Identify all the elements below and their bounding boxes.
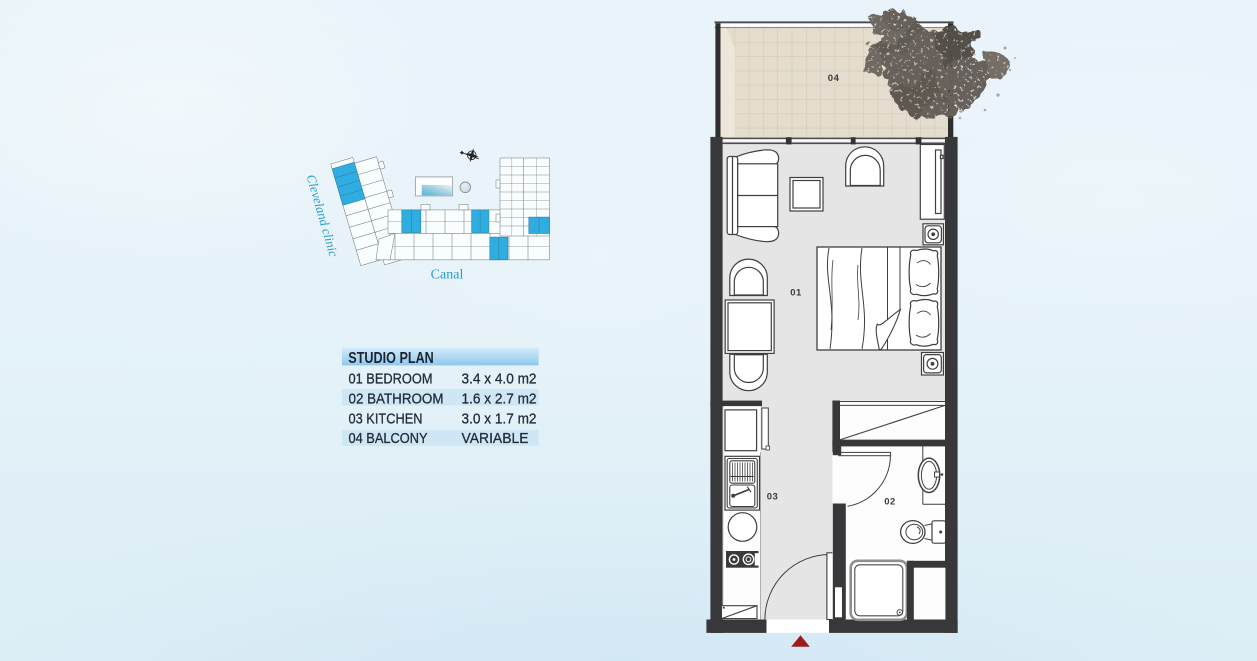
svg-text:04: 04 [828, 73, 840, 84]
svg-text:3.4 x 4.0 m2: 3.4 x 4.0 m2 [462, 371, 537, 388]
svg-text:01: 01 [790, 288, 802, 299]
svg-text:Canal: Canal [431, 268, 464, 283]
svg-text:02 BATHROOM: 02 BATHROOM [349, 390, 444, 407]
svg-text:02: 02 [884, 497, 896, 508]
svg-text:03 KITCHEN: 03 KITCHEN [349, 410, 423, 427]
svg-text:Cleveland clinic: Cleveland clinic [304, 173, 342, 259]
svg-text:VARIABLE: VARIABLE [462, 430, 529, 447]
svg-text:STUDIO PLAN: STUDIO PLAN [348, 350, 434, 367]
svg-text:03: 03 [767, 492, 779, 503]
svg-text:04 BALCONY: 04 BALCONY [349, 430, 428, 447]
svg-text:01 BEDROOM: 01 BEDROOM [349, 371, 433, 388]
svg-text:1.6 x 2.7 m2: 1.6 x 2.7 m2 [462, 390, 537, 407]
svg-text:3.0 x 1.7 m2: 3.0 x 1.7 m2 [462, 410, 537, 427]
